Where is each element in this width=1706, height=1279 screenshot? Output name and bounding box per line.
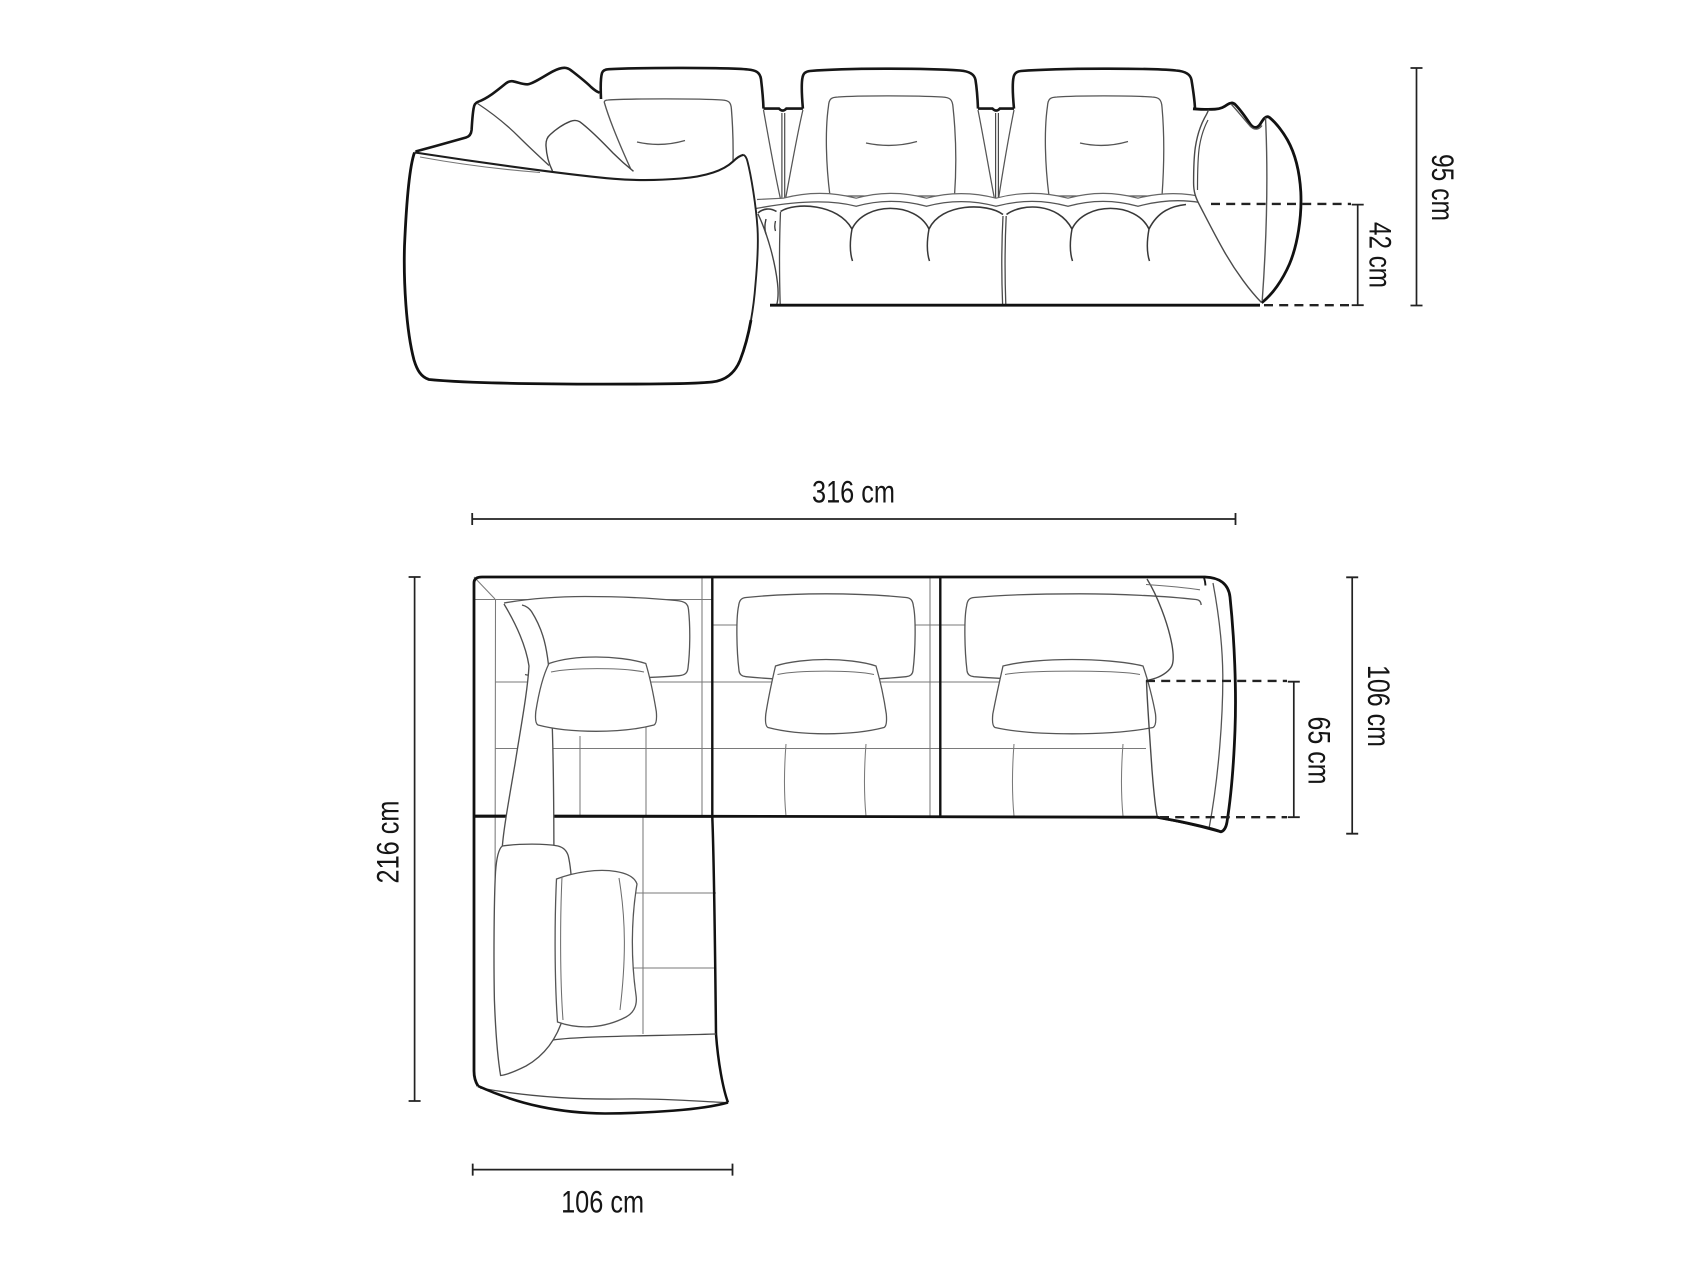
svg-text:95 cm: 95 cm bbox=[1425, 154, 1461, 221]
svg-text:42 cm: 42 cm bbox=[1363, 222, 1399, 288]
svg-text:316 cm: 316 cm bbox=[812, 474, 895, 510]
svg-text:106 cm: 106 cm bbox=[561, 1184, 644, 1220]
svg-text:65 cm: 65 cm bbox=[1302, 717, 1338, 785]
svg-text:216 cm: 216 cm bbox=[370, 801, 406, 884]
svg-text:106 cm: 106 cm bbox=[1361, 665, 1397, 747]
